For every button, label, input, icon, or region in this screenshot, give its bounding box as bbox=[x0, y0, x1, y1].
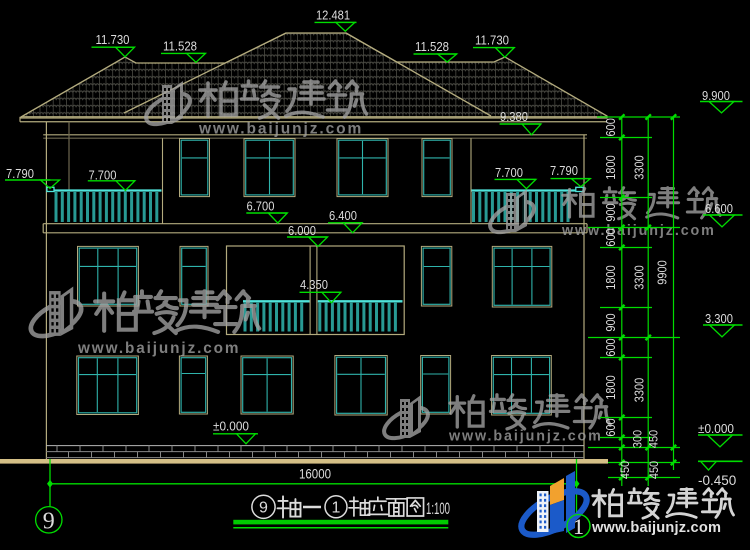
svg-text:16000: 16000 bbox=[299, 466, 331, 482]
svg-text:450: 450 bbox=[649, 461, 661, 479]
svg-text:11.528: 11.528 bbox=[163, 39, 197, 54]
svg-text:900: 900 bbox=[604, 203, 618, 221]
svg-text:6.000: 6.000 bbox=[288, 223, 316, 238]
svg-text:1: 1 bbox=[573, 514, 584, 539]
svg-text:7.790: 7.790 bbox=[6, 166, 34, 181]
svg-text:9900: 9900 bbox=[656, 260, 670, 284]
svg-text:450: 450 bbox=[620, 461, 632, 479]
svg-text:6.400: 6.400 bbox=[329, 208, 357, 223]
svg-text:900: 900 bbox=[604, 313, 618, 331]
svg-text:3300: 3300 bbox=[633, 155, 647, 179]
svg-text:9.380: 9.380 bbox=[500, 109, 528, 124]
svg-text:450: 450 bbox=[649, 430, 661, 448]
svg-text:9: 9 bbox=[259, 500, 268, 517]
svg-text:600: 600 bbox=[604, 418, 618, 436]
svg-text:9.900: 9.900 bbox=[702, 88, 730, 103]
svg-text:7.790: 7.790 bbox=[550, 163, 578, 178]
svg-text:www.baijunjz.com: www.baijunjz.com bbox=[77, 340, 240, 357]
svg-text:-0.450: -0.450 bbox=[698, 473, 736, 488]
svg-text:1: 1 bbox=[332, 500, 341, 517]
svg-text:±0.000: ±0.000 bbox=[213, 419, 249, 434]
svg-text:www.baijunjz.com: www.baijunjz.com bbox=[591, 520, 721, 536]
svg-text:1800: 1800 bbox=[604, 265, 618, 289]
svg-text:7.700: 7.700 bbox=[495, 165, 523, 180]
svg-text:4.350: 4.350 bbox=[300, 277, 328, 292]
svg-text:300: 300 bbox=[633, 430, 645, 448]
svg-text:3.300: 3.300 bbox=[705, 311, 733, 326]
svg-text:1:100: 1:100 bbox=[426, 499, 450, 518]
svg-text:3300: 3300 bbox=[633, 378, 647, 402]
svg-text:1800: 1800 bbox=[604, 155, 618, 179]
svg-text:3300: 3300 bbox=[633, 265, 647, 289]
svg-text:600: 600 bbox=[604, 118, 618, 136]
svg-text:www.baijunjz.com: www.baijunjz.com bbox=[561, 223, 716, 239]
svg-text:11.730: 11.730 bbox=[475, 32, 509, 47]
svg-text:600: 600 bbox=[604, 228, 618, 246]
svg-text:1800: 1800 bbox=[604, 375, 618, 399]
svg-text:11.528: 11.528 bbox=[415, 39, 449, 54]
svg-text:11.730: 11.730 bbox=[96, 32, 130, 47]
svg-text:www.baijunjz.com: www.baijunjz.com bbox=[448, 429, 603, 445]
svg-text:www.baijunjz.com: www.baijunjz.com bbox=[198, 121, 363, 138]
svg-text:±0.000: ±0.000 bbox=[698, 421, 734, 436]
svg-text:6.700: 6.700 bbox=[247, 199, 275, 214]
svg-text:9: 9 bbox=[43, 508, 55, 534]
svg-text:6.600: 6.600 bbox=[705, 201, 733, 216]
svg-text:12.481: 12.481 bbox=[316, 8, 350, 23]
svg-text:600: 600 bbox=[604, 338, 618, 356]
